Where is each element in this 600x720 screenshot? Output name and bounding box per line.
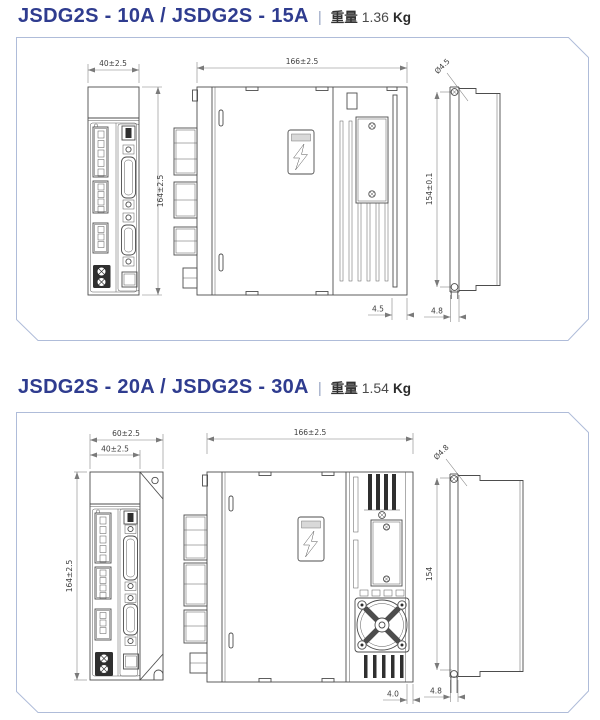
power-connector	[95, 652, 113, 676]
dim-front-height: 164±2.5	[156, 175, 165, 208]
dim-side-width: 166±2.5	[286, 57, 319, 66]
side-view: 166±2.5 4.5	[174, 57, 413, 320]
section-title-2: JSDG2S - 20A / JSDG2S - 30A | 重量 1.54 Kg	[18, 376, 411, 399]
dim-front-outer-width: 60±2.5	[112, 429, 140, 438]
drawing-panel-2: 60±2.5 40±2.5 164±2.5	[16, 412, 589, 718]
dim-front-width: 40±2.5	[101, 445, 129, 454]
datasheet-page: JSDG2S - 10A / JSDG2S - 15A | 重量 1.36 Kg…	[0, 0, 600, 720]
weight-unit: Kg	[393, 381, 411, 396]
drawing-panel-1: 40±2.5 164±2.5	[16, 37, 589, 346]
model-names: JSDG2S - 10A / JSDG2S - 15A	[18, 5, 309, 28]
weight-label: 重量	[331, 6, 358, 26]
weight-info: 重量 1.54 Kg	[331, 377, 411, 397]
weight-label: 重量	[331, 377, 358, 397]
power-connector	[93, 265, 111, 288]
weight-unit: Kg	[393, 10, 411, 25]
model-names: JSDG2S - 20A / JSDG2S - 30A	[18, 376, 309, 399]
dim-side-gap: 4.0	[387, 690, 399, 699]
dim-front-width: 40±2.5	[99, 59, 127, 68]
drive-body	[90, 472, 140, 680]
weight-info: 重量 1.36 Kg	[331, 6, 411, 26]
dim-front-height: 164±2.5	[65, 560, 74, 593]
dim-side-gap: 4.5	[372, 305, 384, 314]
dim-rear-height: 154±0.1	[425, 173, 434, 206]
dim-rear-height: 154	[425, 567, 434, 582]
weight-value: 1.36	[362, 9, 389, 25]
section-title-1: JSDG2S - 10A / JSDG2S - 15A | 重量 1.36 Kg	[18, 5, 411, 28]
dim-rear-tab: 4.8	[431, 307, 443, 316]
dim-rear-tab: 4.8	[430, 687, 442, 696]
side-heatsink-band	[140, 472, 163, 680]
title-separator: |	[318, 380, 322, 397]
title-separator: |	[318, 9, 322, 26]
dim-side-width: 166±2.5	[294, 428, 327, 437]
weight-value: 1.54	[362, 380, 389, 396]
